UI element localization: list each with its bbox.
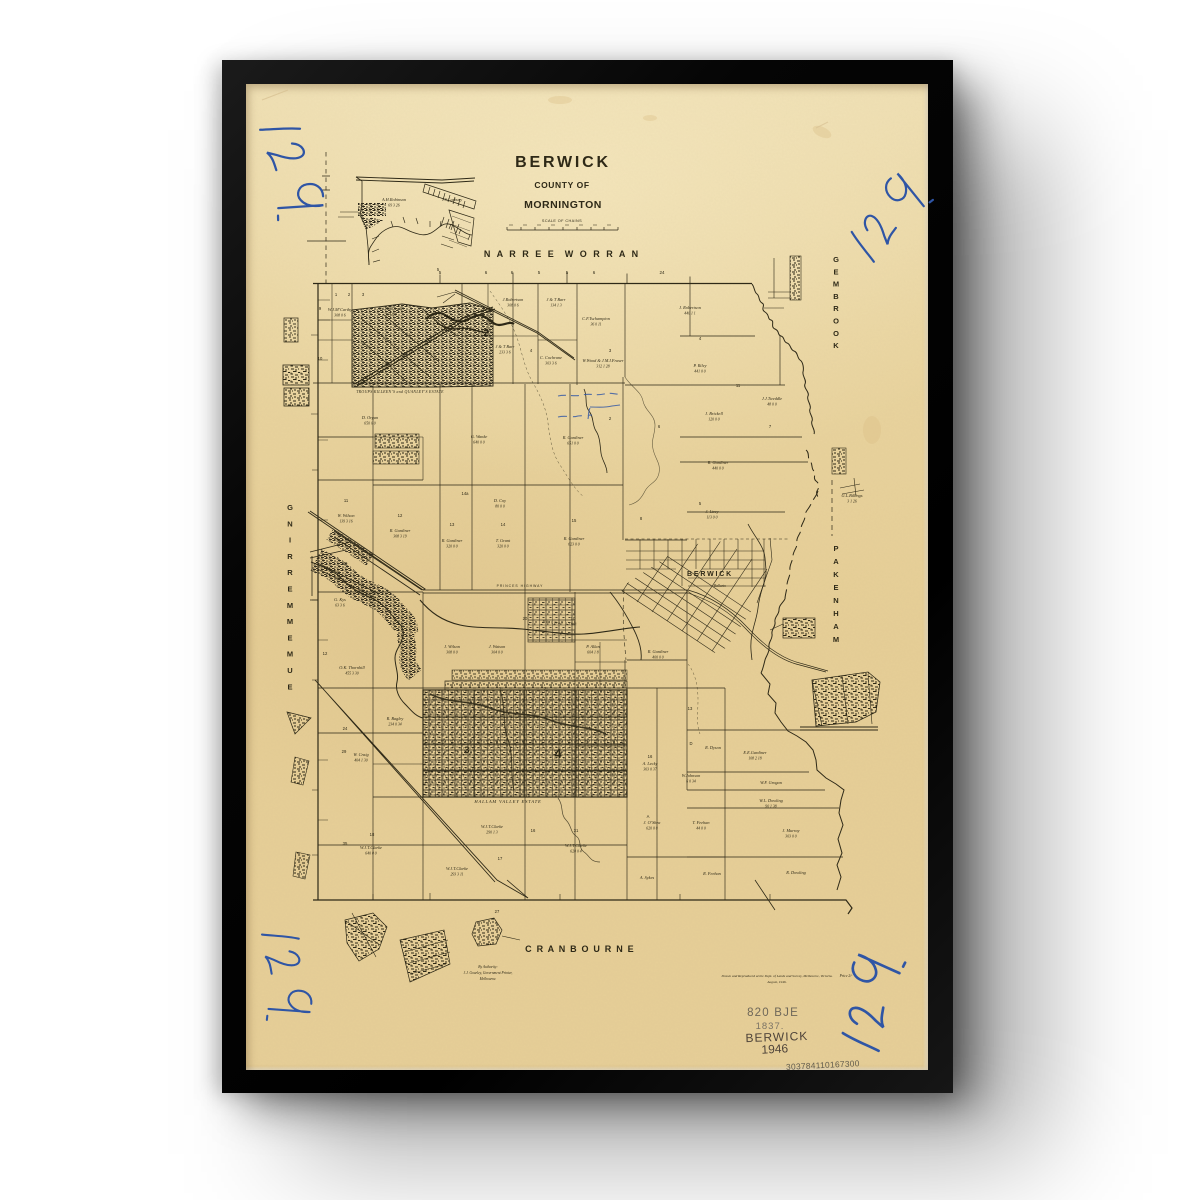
svg-text:M: M <box>833 635 839 644</box>
svg-text:C R A N B O U R N E: C R A N B O U R N E <box>525 944 635 954</box>
svg-text:K: K <box>833 570 839 579</box>
svg-text:820 BJE: 820 BJE <box>747 1007 799 1019</box>
svg-text:120 0 0: 120 0 0 <box>708 418 719 422</box>
svg-text:234 0 34: 234 0 34 <box>388 723 401 727</box>
svg-text:3 1 26: 3 1 26 <box>847 500 857 504</box>
svg-text:312 1 28: 312 1 28 <box>596 365 609 369</box>
svg-text:Melbourne.: Melbourne. <box>479 977 497 981</box>
svg-text:35: 35 <box>343 841 348 846</box>
svg-text:604 1 8: 604 1 8 <box>587 651 598 655</box>
svg-text:24: 24 <box>659 270 665 275</box>
svg-text:6: 6 <box>593 270 596 275</box>
svg-text:MORNINGTON: MORNINGTON <box>524 199 602 211</box>
svg-text:3: 3 <box>464 745 469 755</box>
svg-text:O.K. Thornhill: O.K. Thornhill <box>339 665 365 670</box>
svg-text:R. Bagley: R. Bagley <box>386 716 404 721</box>
svg-text:Ballarto: Ballarto <box>714 584 726 588</box>
svg-text:A: A <box>833 622 839 631</box>
svg-text:A: A <box>833 557 839 566</box>
svg-text:M: M <box>287 617 293 626</box>
svg-text:303 3 6: 303 3 6 <box>545 362 556 366</box>
svg-text:6: 6 <box>658 424 661 429</box>
svg-text:J. Wilson: J. Wilson <box>444 644 460 649</box>
svg-text:J. Lirey: J. Lirey <box>706 509 719 514</box>
svg-text:29: 29 <box>342 749 347 754</box>
svg-text:R. Gardiner: R. Gardiner <box>647 649 669 654</box>
svg-text:290 1 3: 290 1 3 <box>486 831 497 835</box>
svg-text:J. Brickell: J. Brickell <box>705 411 723 416</box>
svg-text:1: 1 <box>335 292 338 297</box>
svg-text:P. Riley: P. Riley <box>692 363 706 368</box>
svg-text:6 0 34: 6 0 34 <box>686 780 696 784</box>
svg-text:651 0 0: 651 0 0 <box>567 442 578 446</box>
svg-text:308 0 6: 308 0 6 <box>334 314 345 318</box>
svg-text:10: 10 <box>318 356 323 361</box>
svg-text:W.J.T.Clarke: W.J.T.Clarke <box>360 845 382 850</box>
svg-text:W. Wilson: W. Wilson <box>337 513 354 518</box>
svg-text:J.Robertson: J.Robertson <box>503 297 524 302</box>
svg-text:3: 3 <box>362 292 365 297</box>
svg-text:11: 11 <box>344 498 349 503</box>
svg-text:T. Grant: T. Grant <box>496 538 511 543</box>
svg-text:G. Wanke: G. Wanke <box>471 434 488 439</box>
svg-text:308 0 0: 308 0 0 <box>446 651 457 655</box>
svg-text:W.L. Dowling: W.L. Dowling <box>759 798 783 803</box>
svg-text:Price 2/-: Price 2/- <box>839 974 853 978</box>
svg-text:44 0 0: 44 0 0 <box>696 827 706 831</box>
svg-text:113 0 0: 113 0 0 <box>706 516 717 520</box>
svg-text:M: M <box>287 650 293 659</box>
svg-text:8: 8 <box>640 516 643 521</box>
svg-text:400 0 0: 400 0 0 <box>652 656 663 660</box>
svg-text:10: 10 <box>571 616 576 621</box>
svg-text:5: 5 <box>566 270 569 275</box>
svg-text:J. Robertson: J. Robertson <box>679 305 701 310</box>
svg-text:G: G <box>287 503 293 512</box>
svg-text:HALLAM VALLEY ESTATE: HALLAM VALLEY ESTATE <box>473 799 541 804</box>
svg-text:80 0 0: 80 0 0 <box>495 505 505 509</box>
svg-text:E: E <box>833 267 838 276</box>
svg-text:M: M <box>287 601 293 610</box>
svg-text:233 3 6: 233 3 6 <box>499 351 510 355</box>
svg-text:90 1 38: 90 1 38 <box>765 805 776 809</box>
svg-text:303 0 0: 303 0 0 <box>785 835 796 839</box>
svg-text:12: 12 <box>323 651 328 656</box>
svg-text:27: 27 <box>495 909 500 914</box>
svg-text:18: 18 <box>370 832 375 837</box>
svg-text:W.J.T.Clarke: W.J.T.Clarke <box>481 824 503 829</box>
svg-text:6: 6 <box>485 270 488 275</box>
svg-text:A.H.Robinson: A.H.Robinson <box>381 197 406 202</box>
svg-text:W.F. Grogan: W.F. Grogan <box>760 780 782 785</box>
svg-text:E: E <box>287 682 292 691</box>
svg-text:Drawn and Reproduced at the De: Drawn and Reproduced at the Dept. of Lan… <box>720 974 832 979</box>
svg-text:R: R <box>833 304 839 313</box>
svg-text:R: R <box>287 552 293 561</box>
svg-text:15: 15 <box>572 518 577 523</box>
svg-text:14: 14 <box>501 522 506 527</box>
svg-text:C.F.Tschampion: C.F.Tschampion <box>582 316 610 321</box>
svg-text:R. Gardiner: R. Gardiner <box>707 460 729 465</box>
svg-text:D. Coy: D. Coy <box>493 498 506 503</box>
svg-text:G.L.Billings: G.L.Billings <box>841 493 862 498</box>
svg-text:E: E <box>287 633 292 642</box>
svg-text:623 0 0: 623 0 0 <box>568 543 579 547</box>
svg-text:P: P <box>833 544 838 553</box>
svg-text:H: H <box>833 609 838 618</box>
svg-text:308 0 6: 308 0 6 <box>507 304 518 308</box>
svg-text:R. Gardiner: R. Gardiner <box>563 536 585 541</box>
svg-text:R. Gardiner: R. Gardiner <box>562 435 584 440</box>
svg-text:W.Johnson: W.Johnson <box>682 773 701 778</box>
svg-text:620 0 0: 620 0 0 <box>646 827 657 831</box>
svg-text:69 3 26: 69 3 26 <box>388 204 399 208</box>
svg-text:2: 2 <box>348 292 351 297</box>
svg-text:9: 9 <box>319 306 322 311</box>
svg-text:J. OʼShea: J. OʼShea <box>644 820 661 825</box>
svg-text:SCALE OF CHAINS: SCALE OF CHAINS <box>542 219 582 223</box>
svg-text:5: 5 <box>699 501 702 506</box>
svg-text:640 0 0: 640 0 0 <box>365 852 376 856</box>
svg-text:W. Craig: W. Craig <box>353 752 369 757</box>
svg-text:320 0 0: 320 0 0 <box>497 545 508 549</box>
svg-text:E: E <box>833 583 838 592</box>
svg-text:16: 16 <box>648 754 653 759</box>
svg-text:12: 12 <box>398 513 403 518</box>
svg-text:24: 24 <box>343 726 348 731</box>
svg-text:J. Murray: J. Murray <box>782 828 799 833</box>
svg-text:308 3 19: 308 3 19 <box>393 535 406 539</box>
svg-text:J.J.Tweddle: J.J.Tweddle <box>762 396 782 401</box>
svg-text:20: 20 <box>523 616 528 621</box>
svg-text:17: 17 <box>498 856 503 861</box>
svg-text:J.S.Lasbury: J.S.Lasbury <box>442 197 462 202</box>
svg-text:K: K <box>833 341 839 350</box>
svg-text:E.E.Gardiner: E.E.Gardiner <box>742 750 767 755</box>
svg-text:U: U <box>287 666 292 675</box>
svg-text:4: 4 <box>699 336 702 341</box>
svg-text:48 0 0: 48 0 0 <box>767 403 777 407</box>
svg-text:293 3 11: 293 3 11 <box>450 873 463 877</box>
svg-text:P. Allan: P. Allan <box>585 644 599 649</box>
svg-text:R. Feehan: R. Feehan <box>702 871 721 876</box>
svg-text:2: 2 <box>609 416 612 421</box>
svg-text:440 0 0: 440 0 0 <box>712 467 723 471</box>
svg-text:A. Sykes: A. Sykes <box>639 875 655 880</box>
svg-text:304 0 0: 304 0 0 <box>385 313 396 317</box>
svg-text:A. Lecky: A. Lecky <box>642 761 658 766</box>
svg-text:BERWICK: BERWICK <box>687 571 733 578</box>
svg-text:5: 5 <box>538 270 541 275</box>
svg-text:A: A <box>647 814 650 819</box>
svg-text:R. Dyson: R. Dyson <box>704 745 721 750</box>
svg-text:W.J.T.Clarke: W.J.T.Clarke <box>565 843 587 848</box>
svg-text:2: 2 <box>483 328 489 339</box>
svg-text:N: N <box>287 519 292 528</box>
svg-text:36 0 11: 36 0 11 <box>590 323 601 327</box>
svg-text:R. Gardiner: R. Gardiner <box>389 528 411 533</box>
svg-text:303 0 37: 303 0 37 <box>643 768 657 772</box>
svg-text:455 3 30: 455 3 30 <box>345 672 358 676</box>
svg-text:13: 13 <box>688 706 693 711</box>
svg-text:11: 11 <box>736 383 741 388</box>
svg-text:J & T Barr: J & T Barr <box>496 344 515 349</box>
svg-text:4: 4 <box>530 348 533 353</box>
svg-text:108 2 18: 108 2 18 <box>748 757 761 761</box>
svg-text:1946: 1946 <box>761 1041 789 1056</box>
svg-text:N A R R E E W O R R A N: N A R R E E W O R R A N <box>484 249 640 259</box>
svg-text:T. Feehan: T. Feehan <box>692 820 709 825</box>
svg-text:W.J.MʼGrath: W.J.MʼGrath <box>380 306 403 311</box>
svg-text:J.J. Gourley, Government Print: J.J. Gourley, Government Printer, <box>464 971 513 976</box>
svg-text:D. Organ: D. Organ <box>361 415 378 420</box>
svg-text:640 0 0: 640 0 0 <box>473 441 484 445</box>
svg-text:August, 1946.: August, 1946. <box>766 980 786 985</box>
svg-text:650 0 0: 650 0 0 <box>364 422 375 426</box>
svg-text:By Authority:: By Authority: <box>478 965 497 969</box>
svg-text:303784110167300: 303784110167300 <box>786 1058 860 1072</box>
svg-text:R: R <box>287 568 293 577</box>
svg-text:TROUPS KILLEENʼS and QUANLEYʼS: TROUPS KILLEENʼS and QUANLEYʼS ESTATE <box>356 390 444 394</box>
svg-text:63 3 6: 63 3 6 <box>335 604 345 608</box>
svg-text:M: M <box>833 280 839 289</box>
svg-text:31: 31 <box>574 828 579 833</box>
svg-text:C. Cochrane: C. Cochrane <box>540 355 562 360</box>
svg-text:139 3 16: 139 3 16 <box>339 520 352 524</box>
svg-text:304 0 0: 304 0 0 <box>491 651 502 655</box>
svg-text:7: 7 <box>769 424 772 429</box>
svg-text:G: G <box>833 255 839 264</box>
svg-text:R. Dowling: R. Dowling <box>785 870 806 875</box>
svg-text:13: 13 <box>450 522 455 527</box>
svg-text:30: 30 <box>343 561 348 566</box>
svg-text:J & T Barr: J & T Barr <box>547 297 566 302</box>
svg-text:I: I <box>289 536 291 545</box>
svg-text:620 0 4: 620 0 4 <box>570 850 581 854</box>
svg-text:PRINCES HIGHWAY: PRINCES HIGHWAY <box>497 584 544 588</box>
svg-text:R. Gardiner: R. Gardiner <box>441 538 463 543</box>
svg-text:W.J.T.Clarke: W.J.T.Clarke <box>446 866 468 871</box>
svg-text:16: 16 <box>531 828 536 833</box>
svg-text:D: D <box>689 741 692 746</box>
svg-text:B: B <box>833 292 839 301</box>
svg-text:N: N <box>833 596 838 605</box>
svg-text:4: 4 <box>554 746 562 761</box>
svg-text:404 1 30: 404 1 30 <box>354 759 367 763</box>
svg-text:O: O <box>833 329 839 338</box>
svg-text:3: 3 <box>609 348 612 353</box>
svg-text:134 1 3: 134 1 3 <box>550 304 561 308</box>
svg-text:320 0 0: 320 0 0 <box>446 545 457 549</box>
svg-text:440 1 1: 440 1 1 <box>684 312 695 316</box>
svg-text:E: E <box>287 585 292 594</box>
svg-text:W.J.MʼCarthy: W.J.MʼCarthy <box>328 307 352 312</box>
svg-text:BERWICK: BERWICK <box>515 154 611 171</box>
svg-text:J. Watson: J. Watson <box>489 644 506 649</box>
svg-text:G. Kys: G. Kys <box>334 597 346 602</box>
svg-text:W.Wood & J.M.I.Fraser: W.Wood & J.M.I.Fraser <box>582 358 624 363</box>
svg-text:COUNTY OF: COUNTY OF <box>534 180 589 190</box>
svg-text:14a: 14a <box>462 491 470 496</box>
svg-text:5: 5 <box>439 270 442 275</box>
svg-text:441 0 0: 441 0 0 <box>694 370 705 374</box>
svg-text:O: O <box>833 317 839 326</box>
